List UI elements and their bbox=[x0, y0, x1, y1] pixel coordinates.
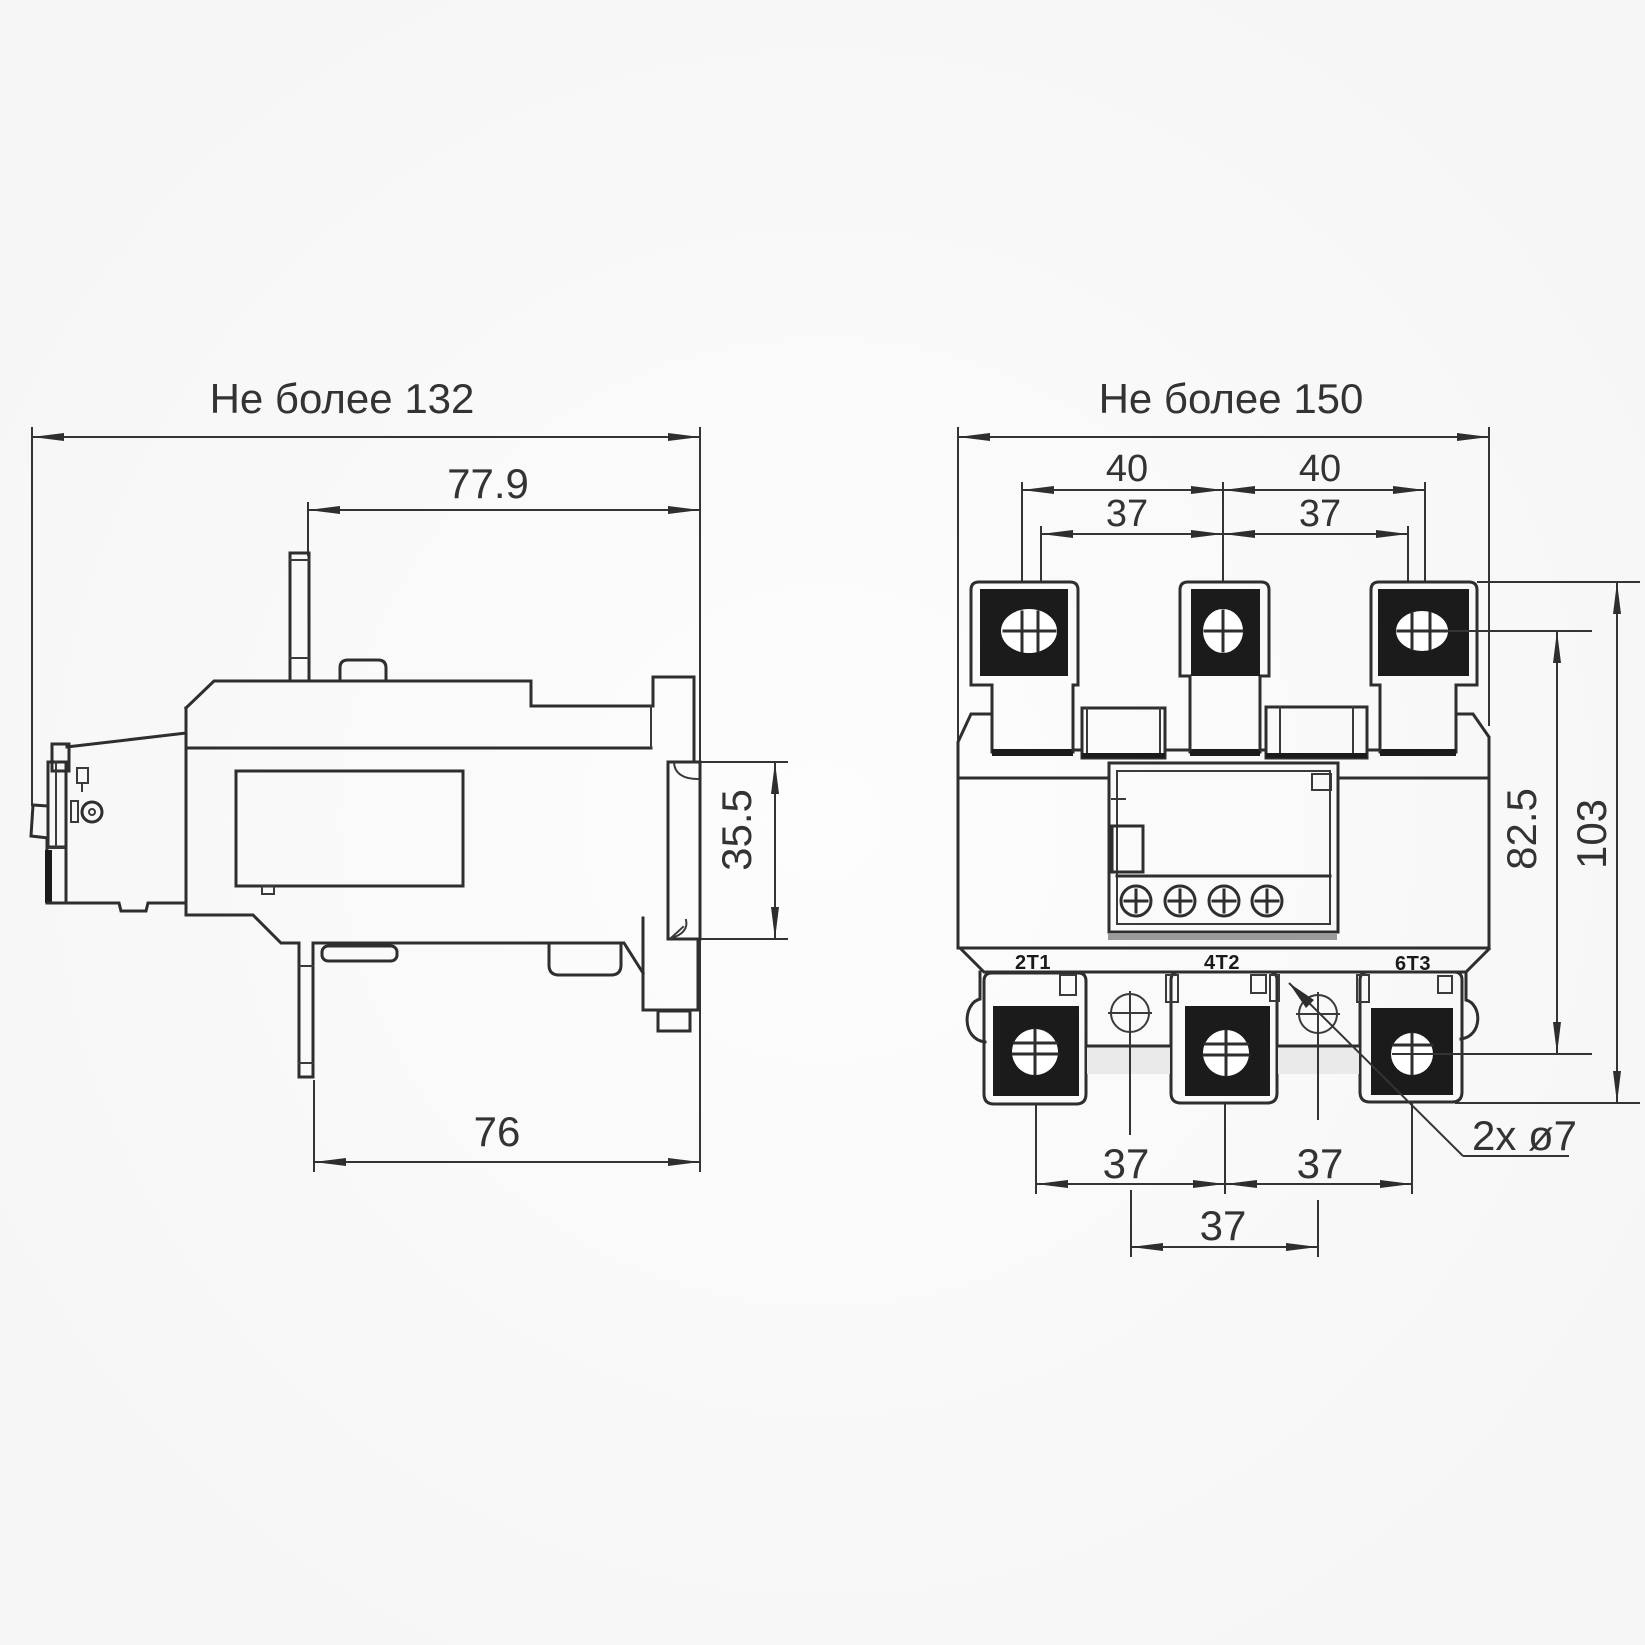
svg-text:2x ø7: 2x ø7 bbox=[1472, 1112, 1577, 1159]
svg-text:Не более 150: Не более 150 bbox=[1099, 375, 1364, 422]
svg-text:37: 37 bbox=[1106, 493, 1148, 535]
svg-text:76: 76 bbox=[474, 1108, 521, 1155]
svg-text:40: 40 bbox=[1106, 448, 1148, 490]
svg-text:Не более 132: Не более 132 bbox=[210, 375, 475, 422]
svg-text:37: 37 bbox=[1200, 1202, 1247, 1249]
svg-text:37: 37 bbox=[1299, 493, 1341, 535]
svg-text:82.5: 82.5 bbox=[1498, 788, 1545, 870]
svg-text:77.9: 77.9 bbox=[447, 460, 529, 507]
svg-text:2T1: 2T1 bbox=[1015, 952, 1051, 974]
svg-text:40: 40 bbox=[1299, 448, 1341, 490]
svg-text:37: 37 bbox=[1103, 1140, 1150, 1187]
svg-text:103: 103 bbox=[1568, 799, 1615, 869]
svg-text:35.5: 35.5 bbox=[713, 789, 760, 871]
svg-text:37: 37 bbox=[1297, 1140, 1344, 1187]
